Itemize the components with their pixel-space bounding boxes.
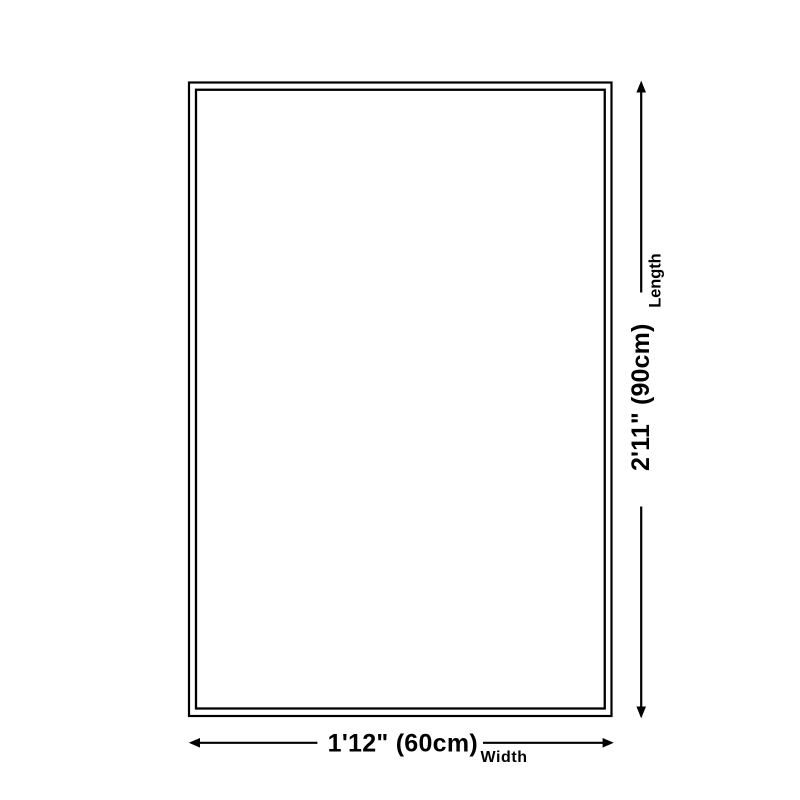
svg-text:2'11" (90cm): 2'11" (90cm)	[627, 324, 655, 471]
svg-text:1'12" (60cm): 1'12" (60cm)	[328, 729, 478, 757]
svg-text:Length: Length	[646, 253, 664, 307]
svg-text:Width: Width	[481, 749, 528, 766]
